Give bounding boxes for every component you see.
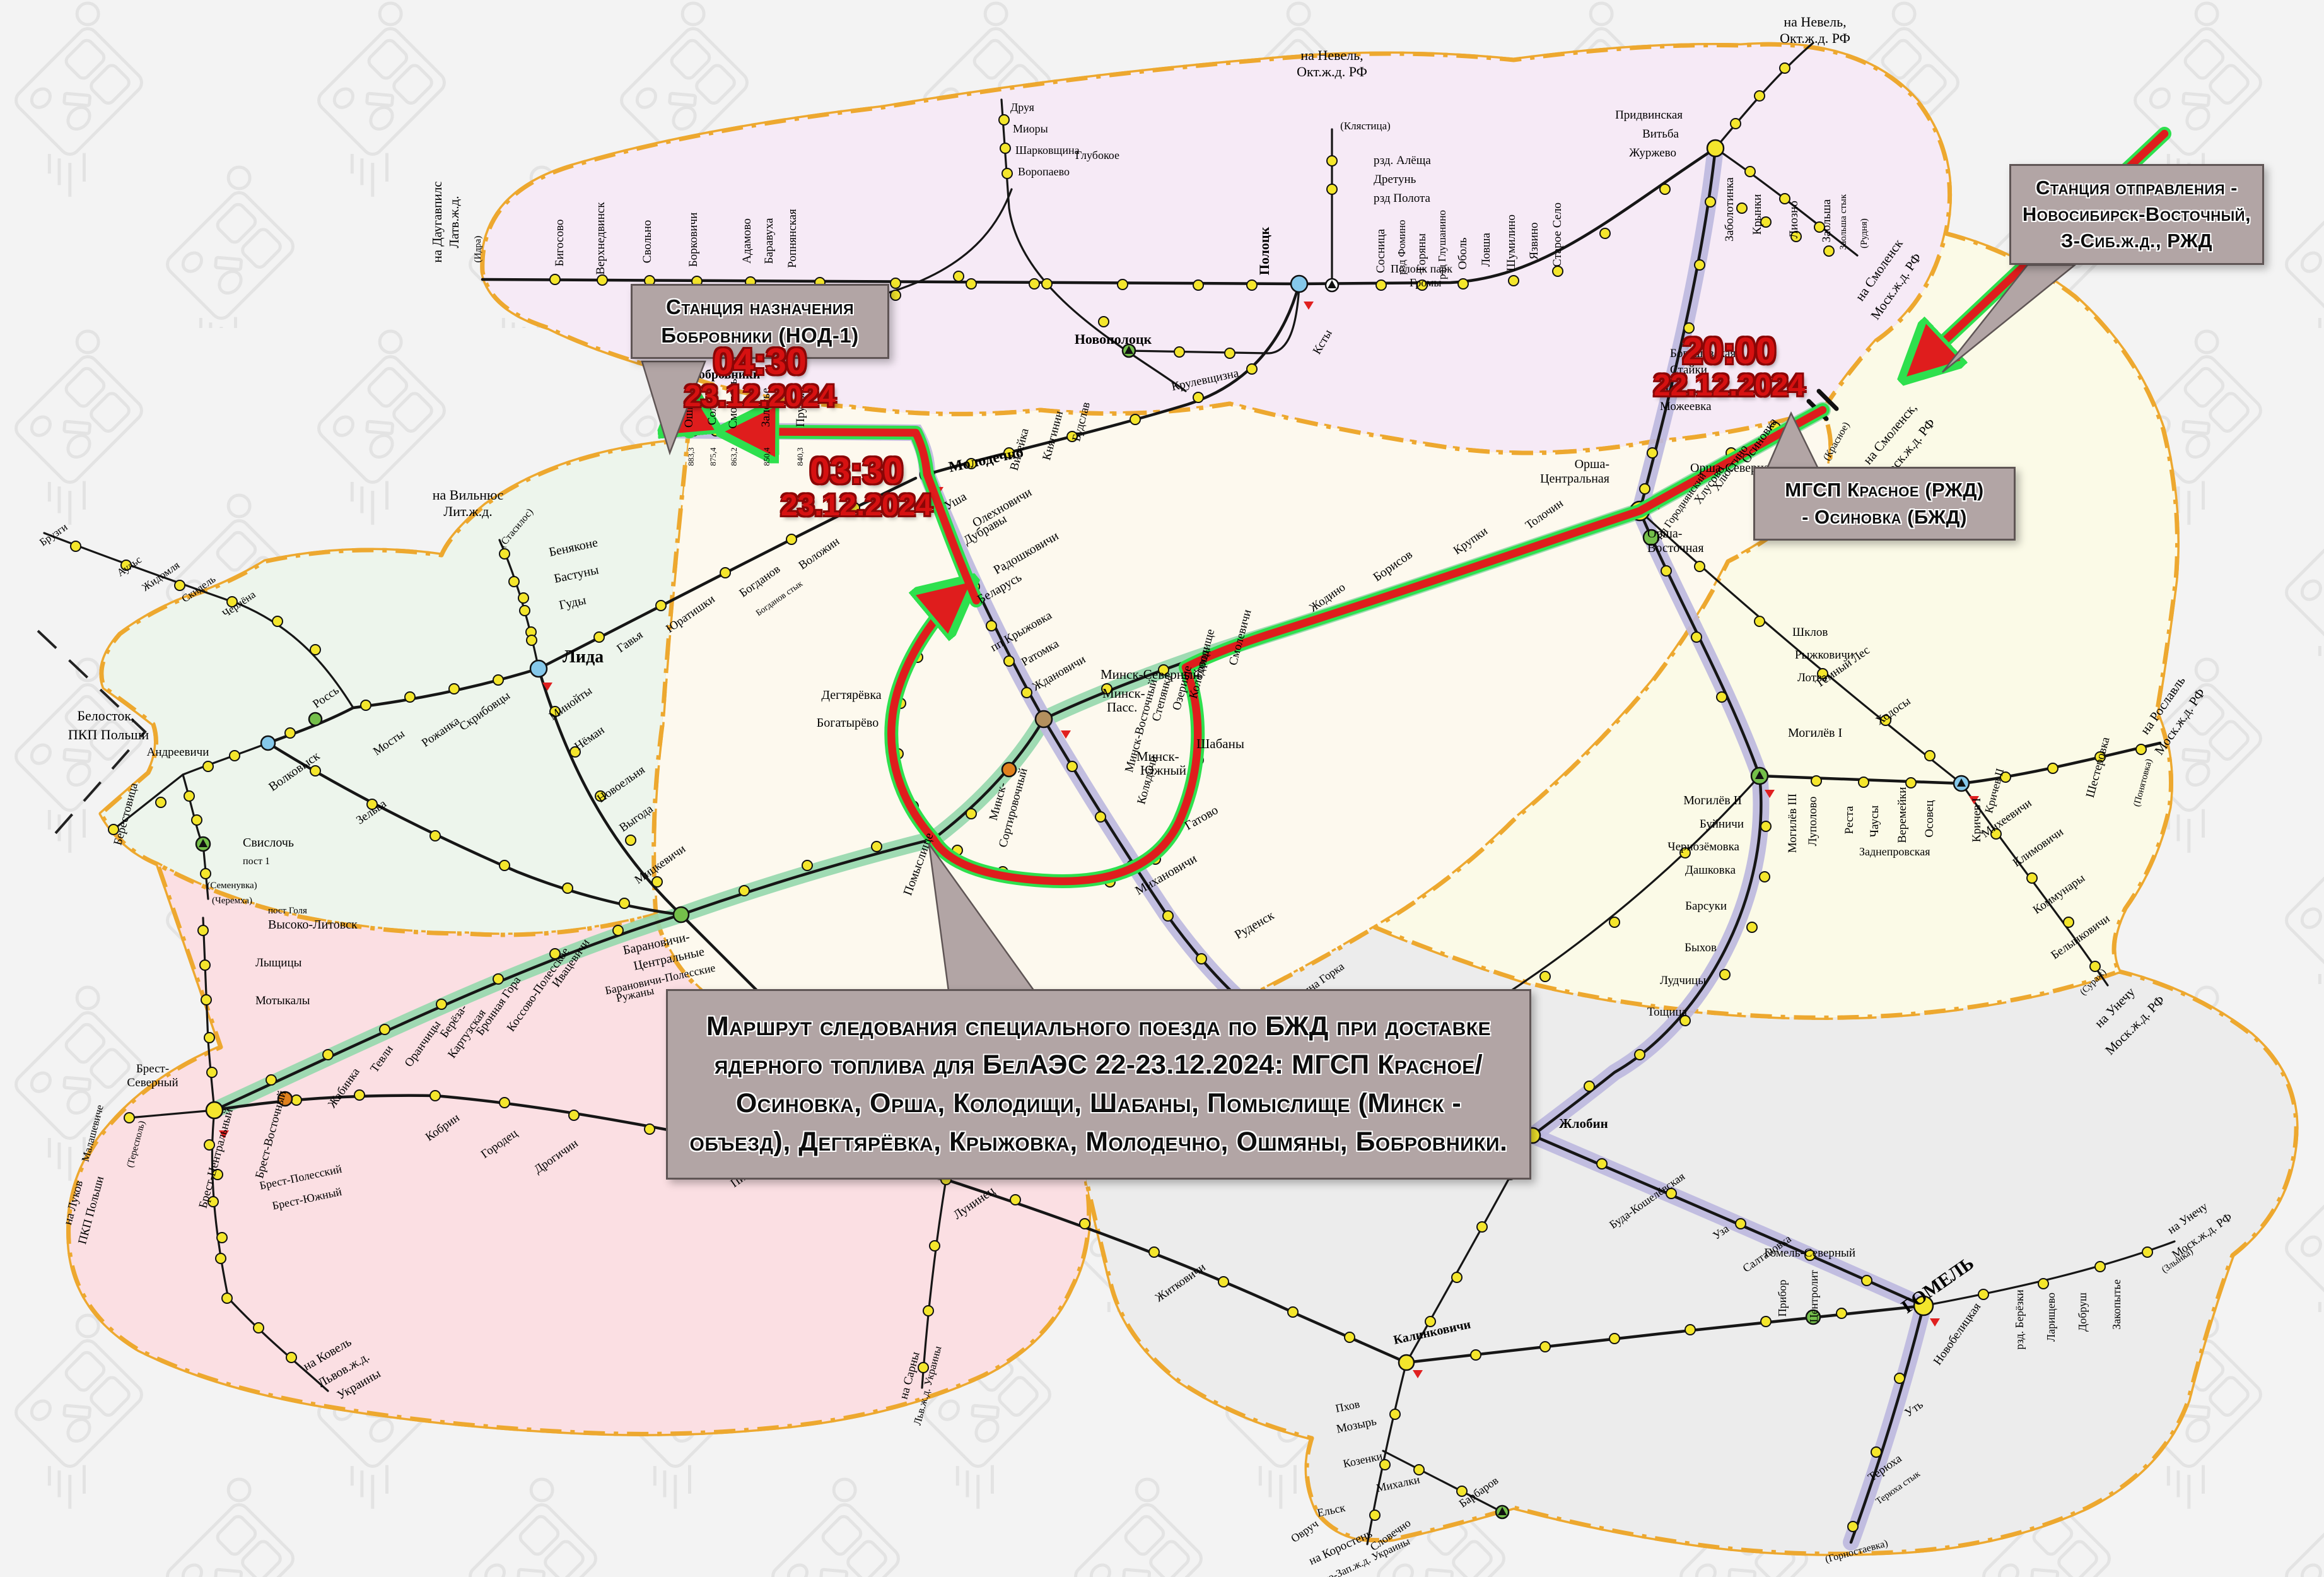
- junction-dot: [1399, 1355, 1414, 1370]
- station-dot: [1477, 1222, 1487, 1232]
- map-label: (Идра): [473, 236, 483, 263]
- station-dot: [201, 995, 211, 1005]
- map-label: Свислочь: [243, 836, 294, 850]
- station-dot: [1609, 917, 1620, 927]
- map-svg: на Невель,Окт.ж.д. РФ(Клястица)на Невель…: [0, 0, 2324, 1577]
- station-dot: [449, 684, 459, 694]
- map-label: Ловша: [1480, 232, 1493, 267]
- map-label: Шумилино: [1505, 214, 1518, 271]
- station-dot: [1218, 1277, 1229, 1287]
- station-dot: [2027, 873, 2037, 883]
- station-dot: [1705, 197, 1715, 207]
- station-dot: [1737, 203, 1747, 213]
- map-label: Крынки: [1751, 194, 1764, 235]
- station-dot: [890, 290, 901, 300]
- station-dot: [1327, 184, 1337, 194]
- map-label: Придвинская: [1615, 108, 1683, 122]
- station-dot: [720, 568, 730, 578]
- station-dot: [890, 278, 901, 288]
- station-dot: [285, 728, 295, 738]
- map-label: Полоцк: [1256, 226, 1272, 275]
- map-label: Чаусы: [1868, 806, 1881, 838]
- map-label: Дретунь: [1374, 173, 1416, 186]
- station-dot: [1895, 1373, 1905, 1383]
- border-line-1: МГСП Красное (РЖД): [1759, 476, 2010, 503]
- map-label: (Клястица): [1340, 120, 1391, 132]
- map-label: Друя: [1010, 101, 1034, 114]
- station-dot: [286, 1352, 296, 1363]
- map-label: Гомель-Северный: [1764, 1246, 1855, 1260]
- map-label: Бигосово: [553, 220, 566, 267]
- map-label: Окт.ж.д. РФ: [1297, 64, 1367, 79]
- station-dot: [192, 815, 202, 825]
- departure-line-1: Станция отправления -: [2015, 175, 2258, 201]
- map-label: Глубокое: [1075, 149, 1119, 161]
- map-label: (Рудня): [1859, 218, 1869, 248]
- route-description-box: Маршрут следования специального поезда п…: [666, 989, 1531, 1180]
- station-dot: [1761, 1316, 1771, 1327]
- station-dot: [2136, 744, 2146, 754]
- station-dot: [1067, 761, 1077, 771]
- map-label: Лыщицы: [255, 956, 302, 970]
- map-label: Белосток,: [77, 708, 134, 724]
- station-dot: [493, 675, 503, 685]
- station-dot: [1640, 484, 1650, 494]
- station-dot: [1099, 317, 1109, 327]
- station-dot: [207, 1067, 217, 1077]
- map-label: Ропнянская: [786, 209, 799, 268]
- map-label: пост 1: [243, 856, 270, 867]
- map-label: Андреевичи: [147, 746, 209, 759]
- station-dot: [1978, 1289, 1988, 1299]
- station-dot: [1836, 1308, 1847, 1318]
- station-dot: [436, 999, 447, 1009]
- station-dot: [1327, 156, 1337, 166]
- station-dot: [2064, 917, 2074, 927]
- map-label: Минск-Северный: [1101, 667, 1200, 682]
- map-label: Заольша стык: [1838, 194, 1848, 250]
- map-label: Брест-: [136, 1062, 169, 1076]
- map-label: Миоры: [1013, 122, 1048, 135]
- station-dot: [509, 577, 519, 587]
- map-label: Центролит: [1807, 1270, 1820, 1322]
- station-dot: [493, 974, 503, 984]
- station-dot: [1247, 364, 1257, 374]
- station-dot: [1747, 922, 1757, 932]
- station-dot: [1458, 279, 1468, 289]
- station-dot: [1193, 280, 1203, 290]
- station-dot: [361, 700, 371, 710]
- station-dot: [1345, 1332, 1355, 1342]
- map-label: Барсуки: [1685, 900, 1727, 913]
- map-label: 875,4: [708, 447, 718, 466]
- station-dot: [872, 841, 882, 852]
- map-label: Баравуха: [762, 218, 776, 264]
- map-label: Жлобин: [1559, 1116, 1608, 1131]
- station-dot: [645, 1124, 655, 1134]
- map-label: Северный: [127, 1076, 178, 1089]
- map-label: Быхов: [1685, 941, 1717, 954]
- station-dot: [380, 1024, 390, 1035]
- station-dot: [1720, 970, 1730, 980]
- station-dot: [254, 1323, 264, 1333]
- station-dot: [1597, 1159, 1607, 1169]
- station-dot: [204, 1033, 214, 1043]
- station-dot: [1755, 616, 1765, 626]
- map-label: Центральная: [1540, 472, 1609, 486]
- station-dot: [1509, 276, 1519, 286]
- station-dot: [1174, 347, 1184, 357]
- map-label: Шабаны: [1196, 736, 1244, 751]
- map-label: Лудчицы: [1660, 974, 1706, 987]
- map-label: Дашковка: [1685, 864, 1736, 877]
- station-dot: [569, 1110, 579, 1120]
- station-dot: [739, 886, 749, 896]
- station-dot: [124, 1113, 134, 1123]
- station-dot: [1717, 692, 1727, 702]
- map-label: Веремейки: [1896, 787, 1909, 843]
- station-dot: [499, 549, 510, 559]
- map-label: рзд Фомино: [1396, 220, 1408, 274]
- map-label: Заднепровская: [1859, 845, 1930, 858]
- station-dot: [266, 1075, 276, 1085]
- station-dot: [999, 115, 1009, 125]
- junction-dot: [1036, 711, 1052, 727]
- junction-dot: [1291, 276, 1307, 292]
- map-label: Журжево: [1629, 146, 1676, 160]
- station-dot: [1685, 1325, 1695, 1335]
- map-label: Витьба: [1642, 127, 1679, 141]
- station-dot: [1004, 656, 1014, 666]
- station-dot: [802, 860, 812, 871]
- station-dot: [1002, 168, 1012, 179]
- station-dot: [272, 616, 283, 626]
- junction-dot: [261, 736, 275, 750]
- station-dot: [2048, 763, 2058, 773]
- map-label: Старое Село: [1551, 202, 1564, 267]
- junction-dot: [530, 660, 547, 677]
- station-dot: [1376, 280, 1386, 290]
- map-label: Мотыкалы: [255, 994, 310, 1007]
- station-dot: [1452, 1272, 1462, 1282]
- map-label: Сосница: [1374, 228, 1387, 273]
- map-label: Прибор: [1776, 1280, 1789, 1317]
- station-dot: [156, 797, 166, 807]
- map-label: Заболотинка: [1723, 177, 1736, 242]
- station-dot: [1600, 228, 1610, 238]
- border-crossing-callout: МГСП Красное (РЖД) - Осиновка (БЖД): [1753, 467, 2016, 541]
- map-label: Высоко-Литовск: [268, 918, 358, 932]
- station-dot: [1118, 279, 1128, 290]
- map-label: Шарковщина: [1015, 144, 1080, 156]
- station-dot: [184, 791, 194, 801]
- station-dot: [222, 1293, 232, 1303]
- map-label: Реста: [1843, 806, 1856, 834]
- junction-dot: [674, 907, 689, 922]
- station-dot: [71, 541, 81, 551]
- station-dot: [1540, 1342, 1550, 1352]
- map-label: Пасс.: [1107, 700, 1137, 715]
- station-dot: [1871, 1447, 1881, 1457]
- station-dot: [1635, 1050, 1645, 1060]
- station-dot: [1609, 1334, 1620, 1344]
- map-label: рзд. Алёща: [1374, 154, 1431, 167]
- station-dot: [1848, 1521, 1858, 1532]
- station-dot: [198, 925, 208, 935]
- station-dot: [1761, 821, 1771, 831]
- station-dot: [430, 1091, 440, 1101]
- station-dot: [966, 809, 976, 819]
- station-dot: [613, 925, 623, 935]
- map-label: Горяны: [1415, 233, 1428, 271]
- station-dot: [1288, 1307, 1298, 1317]
- station-dot: [1695, 561, 1705, 572]
- station-dot: [1029, 279, 1039, 289]
- map-label: рзд Полота: [1374, 192, 1431, 205]
- map-label: пост Голя: [268, 906, 307, 916]
- departure-station-callout: Станция отправления - Новосибирск-Восточ…: [2009, 164, 2264, 265]
- station-dot: [1010, 1195, 1020, 1205]
- station-dot: [1540, 971, 1550, 982]
- junction-dot: [1707, 140, 1724, 156]
- map-label: Лиозно: [1787, 201, 1801, 238]
- station-dot: [1163, 911, 1173, 921]
- station-dot: [986, 621, 996, 631]
- map-label: Тощица: [1647, 1005, 1688, 1019]
- station-dot: [310, 645, 320, 655]
- station-dot: [1780, 63, 1790, 73]
- map-label: 883,3: [686, 447, 696, 466]
- station-dot: [520, 606, 530, 616]
- destination-line-1: Станция назначения: [636, 293, 884, 322]
- map-label: Кричев I: [1970, 798, 1983, 842]
- map-label: Латв.ж.д.: [447, 196, 462, 248]
- station-dot: [1042, 279, 1052, 289]
- map-label: Осовец: [1923, 800, 1936, 837]
- map-label: Оболь: [1456, 237, 1469, 269]
- station-dot: [1661, 566, 1671, 576]
- map-label: на Вильнюс: [433, 487, 504, 503]
- station-dot: [597, 275, 607, 285]
- station-dot: [175, 580, 185, 590]
- map-label: Лит.ж.д.: [443, 503, 493, 519]
- station-dot: [291, 1095, 301, 1105]
- map-label: Восточная: [1647, 541, 1704, 555]
- station-dot: [1755, 91, 1765, 101]
- station-dot: [1225, 348, 1235, 358]
- station-dot: [656, 601, 666, 611]
- map-label: Луполово: [1806, 797, 1819, 847]
- station-dot: [923, 1306, 933, 1316]
- station-dot: [1745, 167, 1755, 177]
- map-label: рзд. Берёзки: [2013, 1289, 2026, 1349]
- station-dot: [1022, 688, 1032, 698]
- station-dot: [1095, 812, 1106, 822]
- station-dot: [1695, 260, 1705, 270]
- station-dot: [1731, 119, 1741, 129]
- station-dot: [1080, 1219, 1090, 1229]
- station-dot: [1149, 1247, 1159, 1257]
- map-label: Добруш: [2076, 1293, 2089, 1332]
- station-dot: [1906, 778, 1916, 788]
- station-dot: [1247, 280, 1257, 290]
- station-dot: [1824, 246, 1834, 256]
- station-dot: [1370, 1510, 1380, 1520]
- station-dot: [216, 1253, 226, 1263]
- map-label: Дегтярёвка: [821, 688, 881, 702]
- map-label: Верхнедвинск: [594, 202, 607, 275]
- map-label: (Семенувка): [207, 881, 257, 891]
- station-dot: [201, 869, 211, 879]
- timestamp-bobrovniki: 04:30 23.12.2024: [628, 344, 892, 414]
- map-label: Ларищево: [2045, 1293, 2057, 1342]
- station-dot: [1691, 632, 1702, 642]
- timestamp-border-arrival: 20:00 22.12.2024: [1597, 333, 1862, 403]
- junction-dot: [309, 713, 322, 725]
- map-label: Чернозёмовка: [1667, 840, 1739, 853]
- departure-line-3: З-Сиб.ж.д., РЖД: [2015, 228, 2258, 254]
- station-dot: [550, 274, 560, 284]
- station-dot: [930, 1241, 940, 1251]
- station-dot: [1471, 1350, 1481, 1360]
- station-dot: [966, 279, 976, 289]
- station-dot: [1736, 1219, 1746, 1229]
- map-label: (Черемха): [212, 896, 252, 906]
- station-dot: [1390, 1409, 1400, 1419]
- station-dot: [527, 635, 537, 645]
- station-dot: [2142, 1247, 2152, 1257]
- station-dot: [230, 751, 240, 761]
- station-dot: [786, 534, 797, 544]
- station-dot: [1760, 872, 1770, 882]
- station-dot: [1196, 954, 1206, 964]
- station-dot: [323, 1050, 333, 1060]
- map-label: Могилёв III: [1786, 794, 1799, 853]
- station-dot: [430, 831, 440, 841]
- map-label: Свольно: [641, 220, 654, 264]
- map-label: Орша-: [1575, 457, 1609, 471]
- railway-map-canvas: на Невель,Окт.ж.д. РФ(Клястица)на Невель…: [0, 0, 2324, 1577]
- map-label: Адамово: [740, 218, 754, 264]
- map-label: Богатырёво: [817, 716, 879, 730]
- map-label: на Невель,: [1300, 47, 1363, 63]
- station-dot: [594, 632, 604, 642]
- station-dot: [1859, 777, 1869, 787]
- map-label: Минск-: [1102, 686, 1145, 701]
- map-label: Борковичи: [687, 213, 700, 267]
- station-dot: [499, 1098, 510, 1108]
- station-dot: [1925, 751, 1935, 761]
- map-label: Могилёв II: [1683, 794, 1742, 807]
- station-dot: [200, 960, 210, 970]
- map-label: Лида: [563, 647, 604, 667]
- station-dot: [499, 860, 510, 871]
- map-label: Новополоцк: [1075, 331, 1152, 347]
- junction-dot: [1002, 763, 1016, 777]
- map-label: на Даугавпилс: [429, 181, 445, 262]
- map-label: Окт.ж.д. РФ: [1780, 30, 1850, 46]
- station-dot: [626, 835, 636, 845]
- station-dot: [1000, 143, 1010, 153]
- map-label: Закопытье: [2110, 1279, 2123, 1330]
- map-label: на Невель,: [1784, 14, 1846, 30]
- station-dot: [217, 1233, 227, 1243]
- station-dot: [1584, 1081, 1594, 1091]
- station-dot: [1553, 266, 1563, 276]
- station-dot: [203, 761, 213, 771]
- station-dot: [1193, 392, 1203, 402]
- station-dot: [563, 883, 573, 893]
- station-dot: [954, 271, 964, 281]
- station-dot: [619, 898, 629, 908]
- map-label: Шклов: [1792, 626, 1828, 639]
- map-label: Язвино: [1527, 223, 1541, 260]
- map-label: Могилёв I: [1788, 726, 1842, 740]
- station-dot: [518, 593, 528, 603]
- map-label: Воропаево: [1018, 165, 1070, 178]
- border-line-2: - Осиновка (БЖД): [1759, 503, 2010, 531]
- station-dot: [1811, 776, 1821, 786]
- station-dot: [2038, 1279, 2048, 1289]
- station-dot: [354, 1090, 365, 1100]
- map-label: Заольша: [1820, 199, 1833, 242]
- station-dot: [1862, 1275, 1872, 1286]
- station-dot: [1130, 414, 1140, 425]
- map-label: ПКП Польши: [68, 727, 149, 742]
- map-label: Буйничи: [1700, 818, 1744, 831]
- station-dot: [2095, 1262, 2105, 1272]
- station-dot: [1660, 184, 1670, 194]
- timestamp-molodechno: 03:30 23.12.2024: [724, 453, 989, 523]
- station-dot: [1647, 448, 1657, 458]
- station-dot: [405, 692, 415, 702]
- departure-line-2: Новосибирск-Восточный,: [2015, 201, 2258, 228]
- station-dot: [652, 877, 662, 887]
- map-label: рзд Глушанино: [1436, 210, 1448, 279]
